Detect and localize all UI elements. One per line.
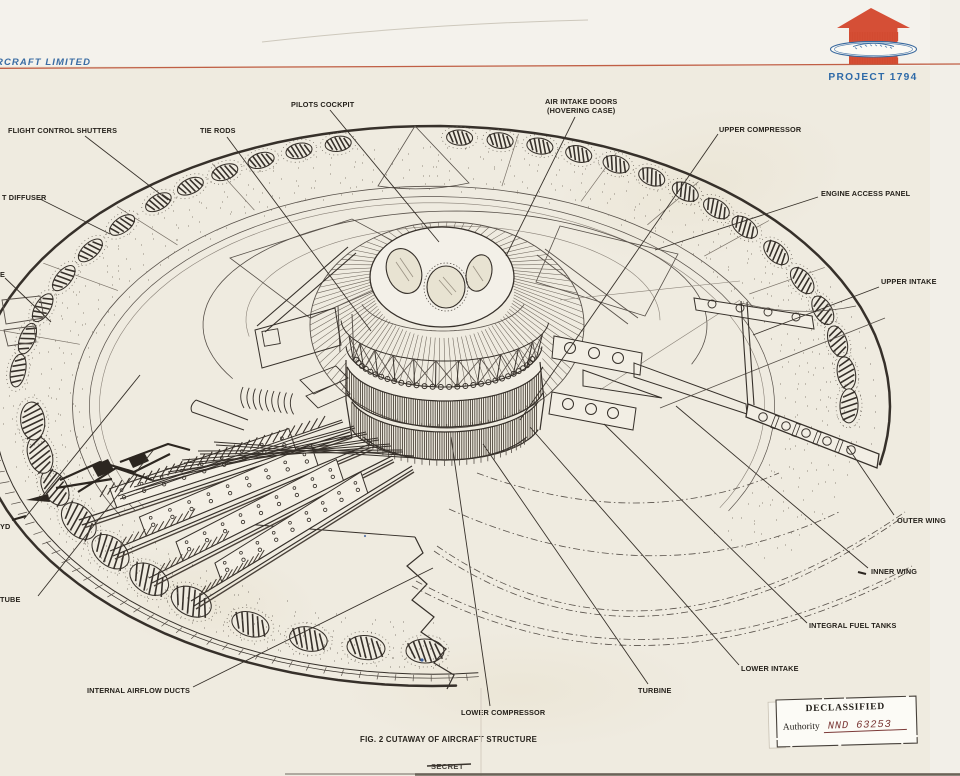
svg-text:AIR INTAKE DOORS: AIR INTAKE DOORS bbox=[545, 97, 617, 106]
svg-text:INNER WING: INNER WING bbox=[871, 567, 917, 576]
svg-text:UPPER COMPRESSOR: UPPER COMPRESSOR bbox=[719, 125, 802, 134]
svg-text:PILOTS COCKPIT: PILOTS COCKPIT bbox=[291, 100, 355, 109]
svg-text:LOWER INTAKE: LOWER INTAKE bbox=[741, 664, 799, 673]
svg-text:TURBINE: TURBINE bbox=[638, 686, 671, 695]
svg-text:(HOVERING CASE): (HOVERING CASE) bbox=[547, 106, 616, 115]
svg-text:RCRAFT LIMITED: RCRAFT LIMITED bbox=[0, 57, 91, 68]
svg-text:E: E bbox=[0, 270, 5, 279]
svg-text:SECRET: SECRET bbox=[431, 762, 464, 771]
svg-text:FLIGHT CONTROL SHUTTERS: FLIGHT CONTROL SHUTTERS bbox=[8, 126, 117, 135]
svg-text:YD: YD bbox=[0, 522, 10, 531]
svg-text:INTERNAL AIRFLOW DUCTS: INTERNAL AIRFLOW DUCTS bbox=[87, 686, 190, 695]
svg-text:TUBE: TUBE bbox=[0, 595, 20, 604]
svg-text:UPPER INTAKE: UPPER INTAKE bbox=[881, 277, 937, 286]
svg-text:FIG. 2 CUTAWAY OF AIRCRAFT STR: FIG. 2 CUTAWAY OF AIRCRAFT STRUCTURE bbox=[360, 735, 537, 744]
svg-text:T DIFFUSER: T DIFFUSER bbox=[2, 193, 47, 202]
svg-text:OUTER WING: OUTER WING bbox=[897, 516, 946, 525]
svg-text:PROJECT 1794: PROJECT 1794 bbox=[828, 72, 917, 83]
svg-text:LOWER COMPRESSOR: LOWER COMPRESSOR bbox=[461, 708, 546, 717]
svg-text:TIE RODS: TIE RODS bbox=[200, 126, 236, 135]
svg-text:ENGINE ACCESS PANEL: ENGINE ACCESS PANEL bbox=[821, 189, 911, 198]
svg-text:Authority: Authority bbox=[783, 722, 820, 733]
svg-text:DECLASSIFIED: DECLASSIFIED bbox=[805, 701, 885, 714]
svg-text:INTEGRAL FUEL TANKS: INTEGRAL FUEL TANKS bbox=[809, 621, 897, 630]
